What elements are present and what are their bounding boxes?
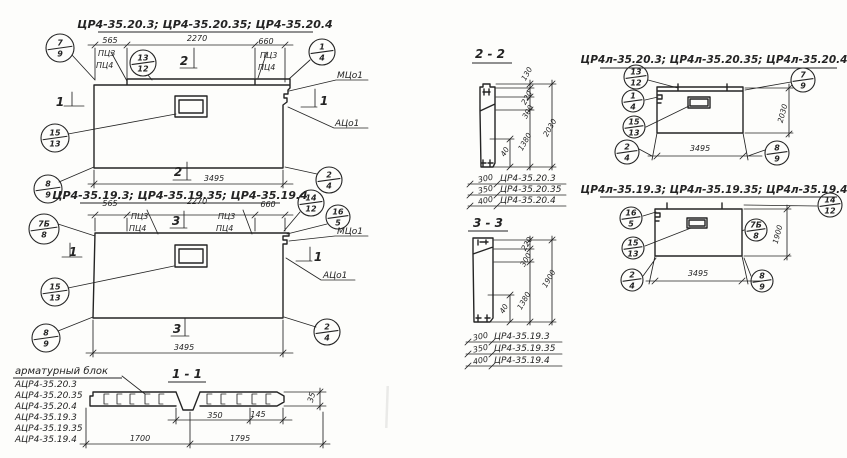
text-layer: ЦР4-35.20.3; ЦР4-35.20.35; ЦР4-35.20.4ЦР… [14,18,847,445]
marker-d1-sec1-left: 1 [56,95,64,109]
title-series-right-bottom: ЦР4л-35.19.3; ЦР4л-35.19.35; ЦР4л-35.19.… [581,184,847,196]
label-d1-mco: МЦо1 [337,71,363,81]
table-s22-name-2: ЦР4-35.20.35 [500,185,562,195]
dim-rd2-1900: 1900 [771,224,785,245]
dims-section-1-1 [80,376,330,448]
callout-2-4-lb-top: 2 [324,323,330,332]
table-s33-name-2: ЦР4-35.19.35 [494,344,556,354]
dim-s33-1900: 1900 [540,268,557,289]
dim-s22-40: 40 [499,145,512,158]
callout-7b-8-lb-bottom: 8 [41,231,47,240]
section-label-3-3: 3 - 3 [473,216,503,230]
label-d1-aco: АЦо1 [334,119,359,129]
callout-13-12-lt-bottom: 12 [137,65,149,74]
callout-7-9-lt-top: 7 [57,39,63,48]
dims-leaders-right-bottom [643,205,817,284]
callout-1-4-rt: 14 [622,90,644,112]
callout-8-9-lb: 89 [32,324,60,352]
callout-2-4-lt-bottom: 4 [325,182,332,191]
label-d1-pc3-right: ПЦ3 [260,51,277,60]
callout-8-9-rb-bottom: 9 [759,283,765,292]
table-s33-name-1: ЦР4-35.19.3 [494,332,550,342]
dims-leaders-left-bottom [58,210,368,357]
dims-leaders-right-top [639,80,793,160]
callout-8-9-rt-top: 8 [774,144,780,153]
callout-16-5-lb: 165 [326,205,350,229]
callout-2-4-lb-bottom: 4 [323,334,330,343]
callout-14-12-lb-bottom: 12 [305,205,317,214]
callout-15-13-rt: 1513 [623,116,645,138]
callout-15-13-lt: 1513 [41,124,69,152]
callout-13-12-rt-top: 13 [630,68,642,77]
callout-13-12-lt-top: 13 [137,54,149,63]
callout-13-12-lt: 1312 [130,50,156,76]
window-opening-right-bottom [687,218,707,228]
dim-d2-3495: 3495 [174,343,194,352]
callout-8-9-rt: 89 [765,141,789,165]
blueprint-page: ЦР4-35.20.3; ЦР4-35.20.35; ЦР4-35.20.4ЦР… [0,0,847,458]
callout-2-4-rt-top: 2 [624,143,630,152]
callout-2-4-lt: 24 [316,167,342,193]
section-3-3-profile [473,238,493,322]
title-series-left-top: ЦР4-35.20.3; ЦР4-35.20.35; ЦР4-35.20.4 [77,18,332,31]
callout-15-13-lb: 1513 [41,278,69,306]
rebar-list-2: АЦР4-35.20.35 [14,391,83,401]
callout-15-13-rt-bottom: 13 [628,129,640,138]
label-d1-pc4-left: ПЦ4 [96,61,113,70]
panel-right-top-outline [657,84,743,133]
table-s33-num-2: 350 [472,343,489,355]
callout-2-4-rt: 24 [615,140,639,164]
callout-1-4-rt-bottom: 4 [629,103,636,112]
callout-16-5-rb-bottom: 5 [628,220,634,229]
panel-left-bottom-outline [93,233,289,318]
callout-15-13-lb-bottom: 13 [49,294,61,303]
table-s33-num-3: 400 [472,355,489,367]
dim-s22-300: 300 [520,103,535,120]
callout-2-4-rb: 24 [621,269,643,291]
label-d2-aco: АЦо1 [322,271,347,281]
dim-d2-660: 660 [260,200,275,209]
rebar-list-1: АЦР4-35.20.3 [14,380,77,390]
marker-d1-sec2-bottom: 2 [174,165,182,179]
callout-8-9-lb-top: 8 [43,329,49,338]
rebar-list-5: АЦР4-35.19.35 [14,424,83,434]
callout-7b-8-lb-top: 7Б [38,220,50,229]
dim-s33-300: 300 [518,251,533,268]
callout-1-4-lt: 14 [309,39,335,65]
dim-s11-1795: 1795 [230,434,250,443]
callout-15-13-lb-top: 15 [49,283,61,292]
label-d1-pc4-right: ПЦ4 [258,63,275,72]
callout-14-12-rb: 1412 [818,193,842,217]
label-d2-pc4-left: ПЦ4 [129,224,146,233]
callout-1-4-rt-top: 1 [630,92,636,101]
table-s33-name-3: ЦР4-35.19.4 [494,356,550,366]
callout-13-12-rt: 1312 [624,65,648,89]
callout-7-9-lt: 79 [46,34,74,62]
callout-15-13-rb-top: 15 [627,239,639,248]
callout-14-12-rb-bottom: 12 [824,207,836,216]
dim-s22-2030: 2030 [541,117,558,138]
label-d2-pc4-right: ПЦ4 [216,224,233,233]
callout-7b-8-rb: 7Б8 [745,219,767,241]
callout-7-9-lt-bottom: 9 [57,50,63,59]
rebar-list-4: АЦР4-35.19.3 [14,413,77,423]
callout-16-5-rb: 165 [620,207,642,229]
callout-14-12-rb-top: 14 [824,196,836,205]
callout-7b-8-rb-top: 7Б [750,221,762,230]
section-label-2-2: 2 - 2 [475,47,505,61]
callout-16-5-rb-top: 16 [625,209,637,218]
dim-s11-35: 35 [306,391,317,403]
dim-s33-40: 40 [498,302,511,315]
callout-2-4-lt-top: 2 [326,171,332,180]
callout-2-4-rb-top: 2 [629,271,635,280]
dim-d1-3495: 3495 [204,174,224,183]
dim-s11-1700: 1700 [130,434,150,443]
dim-d1-565: 565 [102,36,117,45]
callout-8-9-rb-top: 8 [759,272,765,281]
rebar-symbols [104,394,271,404]
dim-s22-130: 130 [519,65,534,82]
callout-2-4-rt-bottom: 4 [623,154,630,163]
callout-14-12-lb-top: 14 [305,194,317,203]
dim-d2-565: 565 [102,199,117,208]
window-opening-left-bottom [175,245,207,267]
callout-1-4-lt-bottom: 4 [318,54,325,63]
callout-15-13-lt-bottom: 13 [49,140,61,149]
label-d2-pc3-right: ПЦ3 [218,212,235,221]
callout-15-13-lt-top: 15 [49,129,61,138]
blueprint-canvas: ЦР4-35.20.3; ЦР4-35.20.35; ЦР4-35.20.4ЦР… [0,0,847,458]
marker-d2-sec3-bottom: 3 [173,322,181,336]
callout-15-13-rb-bottom: 13 [627,250,639,259]
callout-7b-8-rb-bottom: 8 [753,232,759,241]
section-1-1-rebar-block [90,392,284,410]
marker-d2-sec1-left: 1 [69,245,77,259]
table-s22-name-3: ЦР4-35.20.4 [500,196,556,206]
callout-15-13-rb: 1513 [622,237,644,259]
callout-7-9-rt: 79 [791,68,815,92]
callout-7-9-rt-bottom: 9 [800,82,806,91]
callout-7b-8-lb: 7Б8 [29,214,59,244]
dim-s22-1380: 1380 [516,131,533,152]
title-series-right-top: ЦР4л-35.20.3; ЦР4л-35.20.35; ЦР4л-35.20.… [581,54,847,66]
panel-right-bottom-outline [655,203,742,256]
dim-rd1-2030: 2030 [776,103,790,124]
window-opening-right-top [688,97,710,108]
label-d2-pc3-left: ПЦ3 [131,212,148,221]
label-d1-pc3-left: ПЦ3 [98,49,115,58]
callout-16-5-lb-top: 16 [332,208,344,217]
scan-artifact [385,386,389,428]
dim-d1-660: 660 [258,37,273,46]
marker-d1-sec2-top: 2 [180,54,188,68]
callout-8-9-lt-bottom: 9 [45,191,51,200]
callout-8-9-lt-top: 8 [45,180,51,189]
callout-15-13-rt-top: 15 [628,118,640,127]
section-2-2-profile [480,84,495,167]
callout-16-5-lb-bottom: 5 [335,219,341,228]
callout-7-9-rt-top: 7 [800,71,806,80]
callout-2-4-rb-bottom: 4 [628,282,635,291]
callout-14-12-lb: 1412 [298,190,324,216]
dim-rd2-3495: 3495 [688,269,708,278]
section-label-1-1: 1 - 1 [172,367,202,381]
callout-1-4-lt-top: 1 [319,43,325,52]
table-s22-name-1: ЦР4-35.20.3 [500,174,556,184]
rebar-list-3: АЦР4-35.20.4 [14,402,77,412]
table-s33-num-1: 300 [472,331,489,343]
callout-8-9-rt-bottom: 9 [774,155,780,164]
callout-8-9-lb-bottom: 9 [43,340,49,349]
callout-13-12-rt-bottom: 12 [630,79,642,88]
callout-2-4-lb: 24 [314,319,340,345]
marker-d2-sec1-right: 1 [314,250,322,264]
rebar-list-6: АЦР4-35.19.4 [14,435,77,445]
dim-s11-145: 145 [250,410,265,419]
rebar-block-title: арматурный блок [15,365,108,377]
dim-d1-2270: 2270 [187,34,207,43]
marker-d1-sec1-right: 1 [320,94,328,108]
window-opening-left-top [175,96,207,117]
dim-d2-2270: 2270 [187,197,207,206]
table-s22-num-3: 400 [477,195,494,207]
marker-d2-sec3-top: 3 [172,214,180,228]
dim-rd1-3495: 3495 [690,144,710,153]
dim-s11-350: 350 [207,411,222,420]
